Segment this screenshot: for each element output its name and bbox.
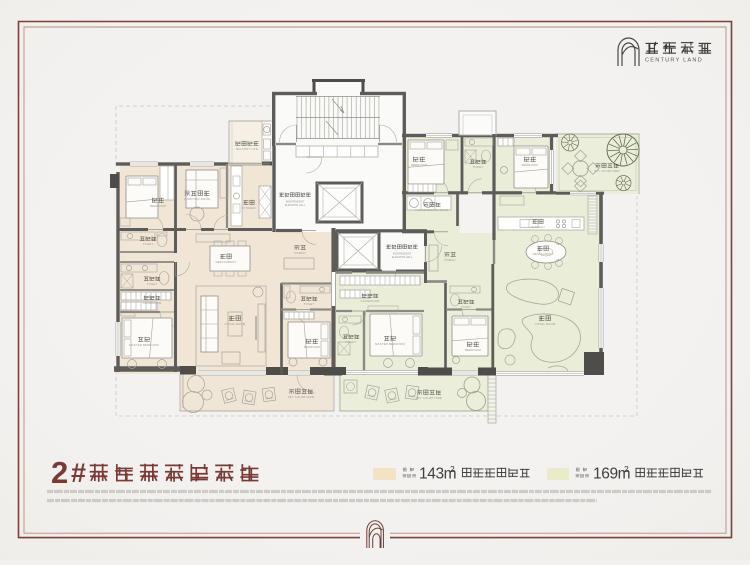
svg-text:PORCH: PORCH [444, 258, 455, 262]
svg-text:BEDROOM: BEDROOM [465, 348, 481, 352]
svg-text:KITCHEN: KITCHEN [531, 225, 544, 229]
svg-text:BALCONY LIFE: BALCONY LIFE [236, 147, 258, 151]
svg-text:#: # [71, 458, 86, 488]
svg-text:CLOAKROOM: CLOAKROOM [143, 301, 162, 305]
svg-text:BEDROOM: BEDROOM [522, 163, 538, 167]
svg-text:PORCH: PORCH [294, 251, 305, 255]
svg-text:BEDROOM: BEDROOM [411, 163, 427, 167]
svg-text:TOILET: TOILET [346, 340, 356, 344]
svg-text:2: 2 [51, 455, 68, 490]
svg-text:RESTAURANT: RESTAURANT [533, 252, 554, 256]
svg-text:LIVING ROOM: LIVING ROOM [535, 322, 556, 326]
svg-text:TOILET: TOILET [473, 165, 483, 169]
svg-text:ELEVATOR HALL: ELEVATOR HALL [285, 203, 306, 207]
svg-text:LIVING ROOM: LIVING ROOM [225, 322, 246, 326]
svg-text:CLOAKROOM: CLOAKROOM [361, 299, 380, 303]
svg-text:BEDROOM: BEDROOM [150, 204, 166, 208]
svg-text:RESTAURANT: RESTAURANT [216, 260, 237, 264]
svg-text:KITCHEN: KITCHEN [242, 206, 255, 210]
svg-text:MASTER BEDROOM: MASTER BEDROOM [129, 343, 159, 347]
svg-text:SKY COURTYARD: SKY COURTYARD [288, 395, 314, 399]
svg-text:BEDROOM: BEDROOM [304, 345, 320, 349]
svg-text:SKY COURTYARD: SKY COURTYARD [594, 169, 619, 173]
svg-text:TOILET: TOILET [304, 302, 314, 306]
svg-text:JUNCTION ROOM: JUNCTION ROOM [184, 197, 211, 201]
svg-text:CENTURY LAND: CENTURY LAND [645, 58, 703, 64]
svg-text:TOILET: TOILET [147, 282, 157, 286]
svg-text:HOUSEKEEPING ROOM: HOUSEKEEPING ROOM [416, 208, 449, 212]
svg-text:SKY COURTYARD: SKY COURTYARD [416, 396, 442, 400]
svg-text:2: 2 [450, 464, 455, 474]
svg-text:2: 2 [624, 464, 629, 474]
svg-text:TOILET: TOILET [143, 242, 153, 246]
svg-text:TOILET: TOILET [461, 305, 471, 309]
svg-text:ELEVATOR HALL: ELEVATOR HALL [392, 255, 413, 259]
svg-text:MASTER BEDROOM: MASTER BEDROOM [375, 342, 405, 346]
